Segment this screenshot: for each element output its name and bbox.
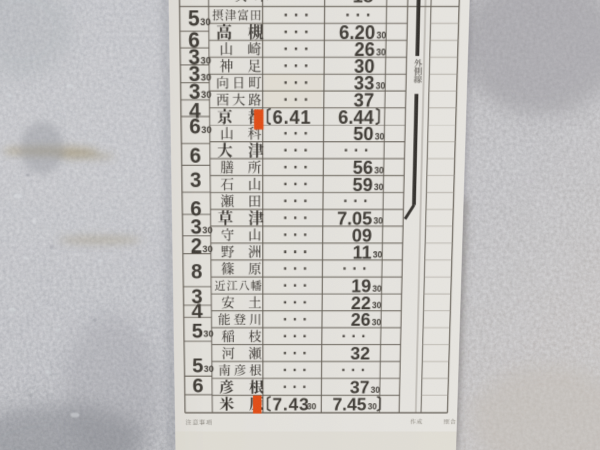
svg-text:7.45: 7.45 bbox=[332, 395, 367, 415]
svg-text:30: 30 bbox=[307, 402, 316, 411]
svg-text:30: 30 bbox=[376, 47, 386, 57]
svg-text:30: 30 bbox=[201, 90, 212, 101]
svg-text:30: 30 bbox=[371, 385, 380, 394]
svg-text:3: 3 bbox=[190, 167, 202, 191]
svg-text:30: 30 bbox=[368, 402, 377, 411]
svg-text:30: 30 bbox=[201, 73, 212, 84]
svg-text:30: 30 bbox=[372, 301, 382, 310]
svg-text:7.43: 7.43 bbox=[272, 395, 309, 415]
svg-text:30: 30 bbox=[201, 56, 212, 67]
svg-text:11: 11 bbox=[353, 242, 372, 263]
svg-text:2: 2 bbox=[191, 234, 203, 258]
svg-text:6: 6 bbox=[189, 114, 201, 139]
svg-text:30: 30 bbox=[373, 250, 383, 260]
svg-text:30: 30 bbox=[372, 318, 381, 327]
svg-text:30: 30 bbox=[375, 81, 385, 91]
svg-text:30: 30 bbox=[376, 30, 386, 40]
svg-text:59: 59 bbox=[352, 174, 373, 195]
svg-text:26: 26 bbox=[351, 310, 371, 331]
svg-text:5: 5 bbox=[192, 319, 203, 342]
svg-text:30: 30 bbox=[203, 244, 214, 254]
svg-text:30: 30 bbox=[200, 17, 211, 28]
svg-text:30: 30 bbox=[374, 166, 384, 176]
svg-text:30: 30 bbox=[204, 364, 215, 374]
svg-text:8: 8 bbox=[191, 259, 203, 283]
svg-text:18: 18 bbox=[353, 0, 374, 8]
svg-text:30: 30 bbox=[203, 330, 214, 340]
svg-text:50: 50 bbox=[353, 124, 374, 146]
svg-text:6: 6 bbox=[189, 143, 201, 168]
svg-text:30: 30 bbox=[372, 284, 382, 293]
svg-text:30: 30 bbox=[201, 125, 212, 136]
svg-text:6: 6 bbox=[192, 374, 203, 397]
svg-text:30: 30 bbox=[375, 132, 385, 142]
svg-text:6.41: 6.41 bbox=[273, 107, 312, 129]
svg-text:30: 30 bbox=[202, 226, 213, 237]
svg-text:30: 30 bbox=[373, 216, 383, 226]
svg-text:32: 32 bbox=[350, 344, 370, 364]
svg-text:30: 30 bbox=[374, 182, 384, 192]
